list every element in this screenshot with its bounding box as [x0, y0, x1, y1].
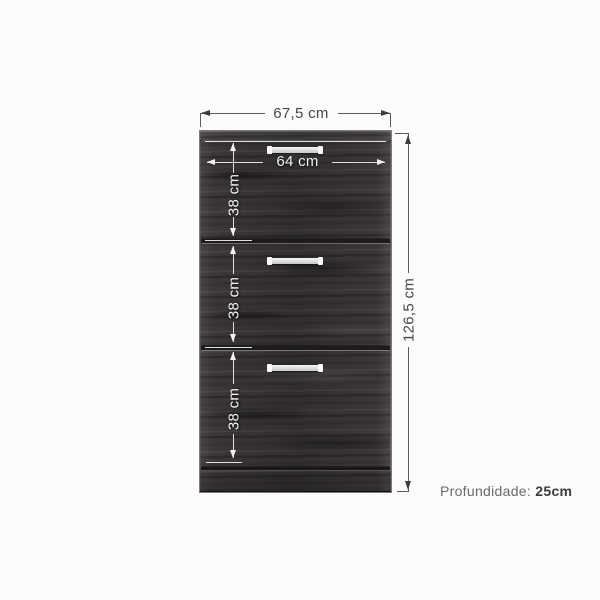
total-height-extension-line	[397, 491, 408, 492]
door-3-height-label: 38 cm	[226, 388, 243, 430]
depth-note-prefix: Profundidade:	[440, 483, 535, 499]
handle-end-cap	[267, 364, 272, 372]
arrow-up-icon	[230, 143, 236, 151]
outer-width-extension-line	[390, 113, 391, 127]
arrow-right-icon	[377, 159, 385, 165]
handle-end-cap	[267, 257, 272, 265]
arrow-down-icon	[230, 228, 236, 236]
arrow-down-icon	[405, 481, 411, 490]
total-height-dim-line	[408, 133, 409, 273]
door-1-extension-tick	[205, 240, 252, 241]
total-height-extension-line	[395, 133, 408, 134]
arrow-up-icon	[230, 352, 236, 360]
outer-width-label: 67,5 cm	[255, 105, 347, 122]
door-1-height-label: 38 cm	[226, 174, 243, 216]
handle-end-cap	[318, 257, 323, 265]
arrow-right-icon	[381, 110, 390, 116]
inner-width-label: 64 cm	[263, 153, 332, 170]
arrow-up-icon	[405, 135, 411, 144]
depth-note: Profundidade: 25cm	[440, 483, 572, 499]
depth-note-value: 25cm	[535, 483, 572, 499]
door-3-handle	[268, 365, 322, 371]
total-height-dim-line	[408, 347, 409, 492]
arrow-left-icon	[207, 159, 215, 165]
door-3-extension-tick	[206, 462, 242, 463]
arrow-left-icon	[201, 110, 210, 116]
door-2-handle	[268, 258, 322, 264]
handle-end-cap	[318, 364, 323, 372]
door-2-height-label: 38 cm	[226, 277, 243, 319]
product-dimension-diagram: 67,5 cm 126,5 cm 64 cm 38 cm 38 cm 38 cm…	[0, 0, 600, 600]
total-height-label: 126,5 cm	[401, 278, 418, 342]
inner-width-dim-line	[207, 162, 263, 163]
arrow-down-icon	[230, 450, 236, 458]
inner-width-extension-line	[205, 141, 386, 142]
door-2-extension-tick	[205, 347, 252, 348]
cabinet-plinth	[200, 470, 391, 492]
arrow-up-icon	[230, 246, 236, 254]
arrow-down-icon	[230, 334, 236, 342]
